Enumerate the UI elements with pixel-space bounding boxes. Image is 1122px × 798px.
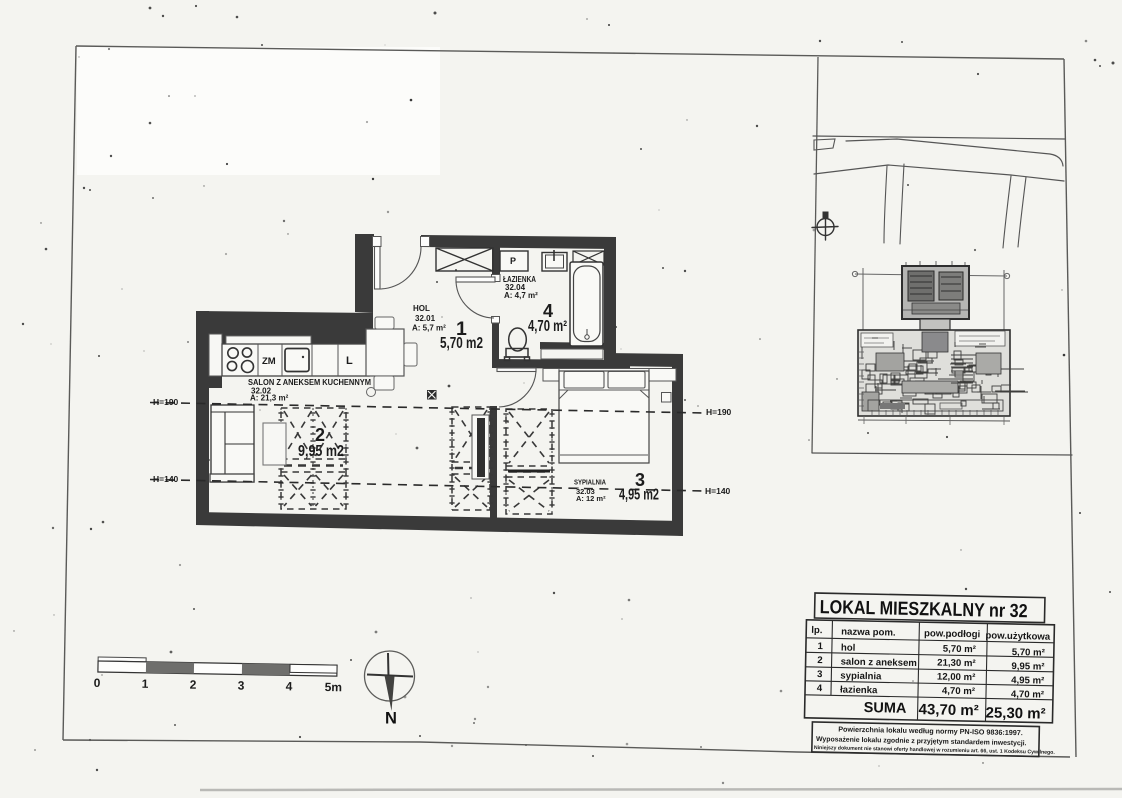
svg-text:3: 3 <box>817 669 823 680</box>
svg-text:A: 5,7 m²: A: 5,7 m² <box>412 324 446 333</box>
svg-text:32.01: 32.01 <box>415 314 436 323</box>
svg-text:1: 1 <box>142 677 149 691</box>
svg-text:4,70 m²: 4,70 m² <box>528 318 567 335</box>
svg-text:H=190: H=190 <box>153 397 179 407</box>
svg-text:4,95 m²: 4,95 m² <box>1011 675 1044 687</box>
svg-text:9,95 m²: 9,95 m² <box>1011 661 1044 673</box>
svg-text:5,70 m²: 5,70 m² <box>943 644 976 656</box>
svg-text:salon z aneksem: salon z aneksem <box>841 657 917 670</box>
svg-text:A: 12 m²: A: 12 m² <box>576 494 606 503</box>
svg-text:lp.: lp. <box>811 625 822 636</box>
svg-text:ZM: ZM <box>262 356 276 367</box>
svg-text:4,95 m2: 4,95 m2 <box>619 487 659 504</box>
svg-text:H=140: H=140 <box>153 474 179 484</box>
svg-text:43,70 m²: 43,70 m² <box>918 701 978 719</box>
svg-text:L: L <box>346 355 353 367</box>
svg-text:5,70 m2: 5,70 m2 <box>440 335 483 352</box>
svg-text:4,70 m²: 4,70 m² <box>942 686 975 698</box>
svg-text:łazienka: łazienka <box>840 685 878 697</box>
svg-text:P: P <box>510 256 516 266</box>
svg-text:H=190: H=190 <box>706 407 732 417</box>
svg-text:A: 4,7 m²: A: 4,7 m² <box>504 291 538 300</box>
svg-text:N: N <box>385 710 397 728</box>
svg-text:H=140: H=140 <box>705 486 731 496</box>
svg-text:25,30 m²: 25,30 m² <box>985 704 1045 722</box>
svg-text:nazwa pom.: nazwa pom. <box>841 627 896 639</box>
svg-text:pow.podłogi: pow.podłogi <box>924 628 980 640</box>
svg-text:21,30 m²: 21,30 m² <box>937 657 976 669</box>
svg-text:0: 0 <box>94 676 101 690</box>
svg-text:3: 3 <box>238 678 245 692</box>
svg-text:hol: hol <box>841 643 856 654</box>
svg-text:5,70 m²: 5,70 m² <box>1012 647 1045 659</box>
svg-text:pow.użytkowa: pow.użytkowa <box>985 630 1051 642</box>
svg-text:LOKAL MIESZKALNY nr 32: LOKAL MIESZKALNY nr 32 <box>819 597 1027 622</box>
svg-text:5m: 5m <box>325 680 343 694</box>
svg-text:4: 4 <box>286 679 293 693</box>
svg-text:9,95 m2: 9,95 m2 <box>298 443 344 460</box>
svg-text:HOL: HOL <box>413 304 430 313</box>
svg-text:SYPIALNIA: SYPIALNIA <box>574 478 606 487</box>
svg-text:2: 2 <box>817 655 823 666</box>
svg-text:SUMA: SUMA <box>864 700 908 717</box>
svg-text:2: 2 <box>315 425 325 445</box>
svg-text:12,00 m²: 12,00 m² <box>937 671 976 683</box>
svg-text:2: 2 <box>190 678 197 692</box>
svg-text:sypialnia: sypialnia <box>840 671 882 683</box>
svg-text:A: 21,3 m²: A: 21,3 m² <box>250 394 289 403</box>
svg-text:4: 4 <box>817 683 823 694</box>
svg-text:1: 1 <box>817 641 823 652</box>
svg-text:4,70 m²: 4,70 m² <box>1011 689 1044 701</box>
